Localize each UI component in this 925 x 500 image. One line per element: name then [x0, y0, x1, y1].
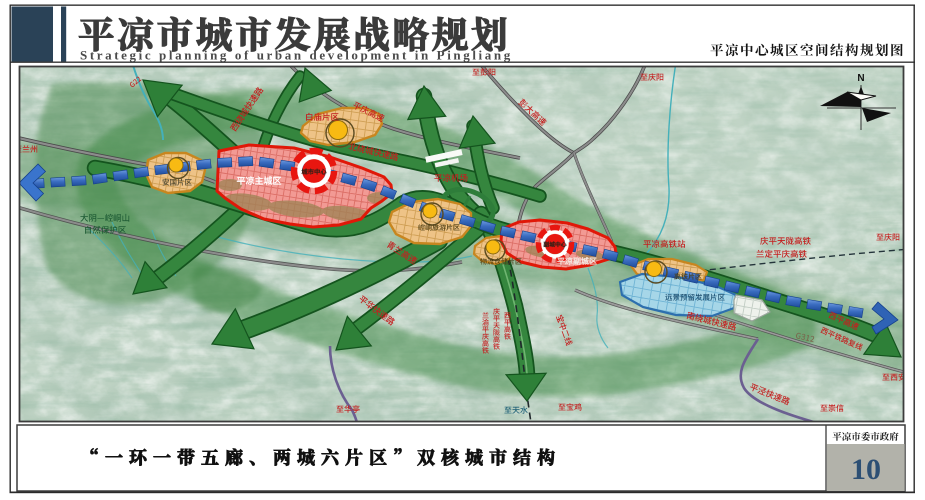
svg-text:N: N — [857, 73, 864, 84]
svg-text:10: 10 — [851, 453, 881, 486]
svg-text:Strategic planning of urban de: Strategic planning of urban development … — [80, 48, 513, 63]
